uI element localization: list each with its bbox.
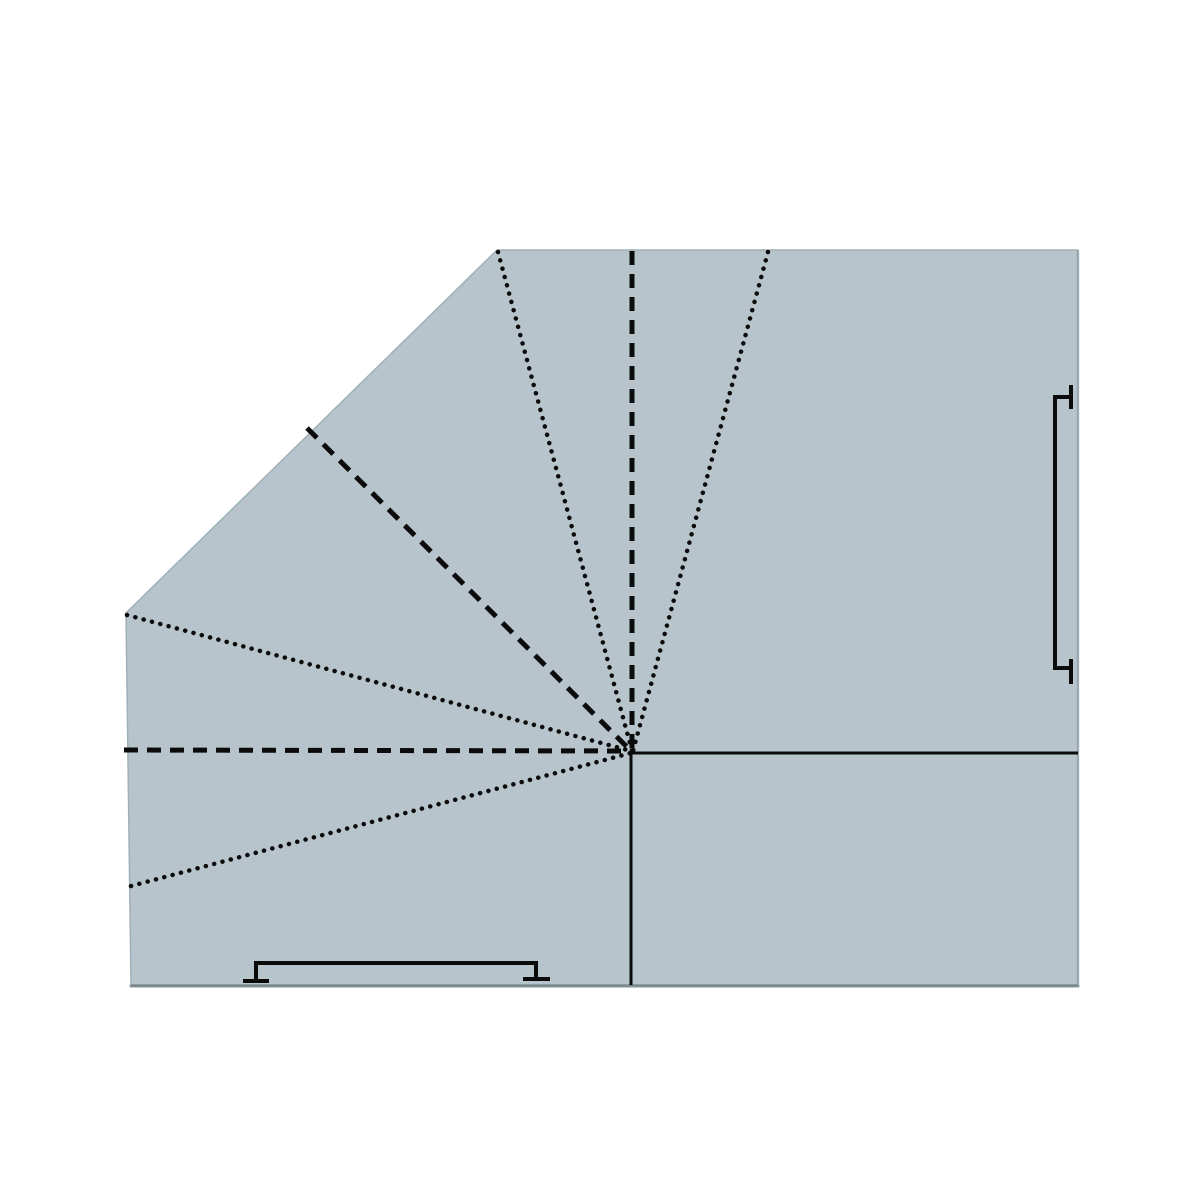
- fold-pattern-page: [0, 0, 1200, 1200]
- fold-pattern-svg: [0, 0, 1200, 1200]
- paper-shape: [126, 250, 1078, 985]
